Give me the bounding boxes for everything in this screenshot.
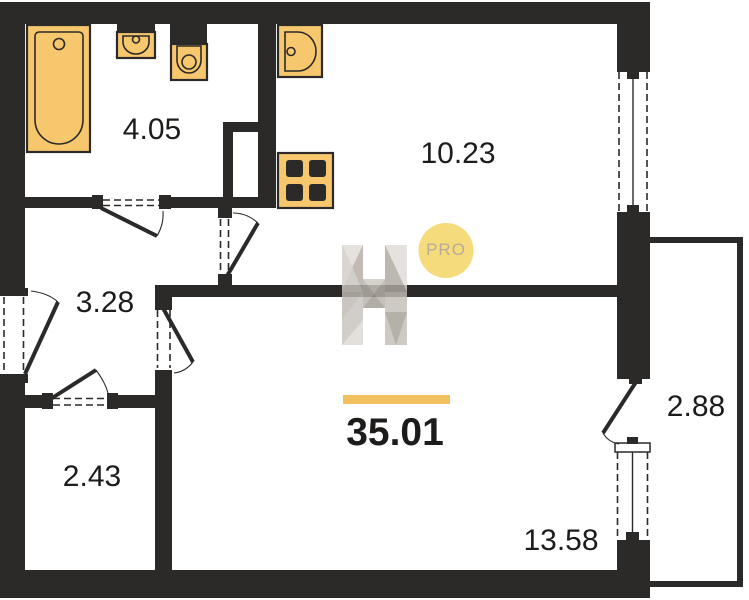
total-area-label: 35.01	[346, 411, 444, 455]
area-label-kitchen-living: 10.23	[420, 137, 495, 171]
bathtub	[27, 25, 90, 152]
door-entrance	[4, 291, 58, 374]
stove	[278, 153, 333, 208]
area-label-balcony: 2.88	[667, 390, 725, 424]
door-storage	[49, 370, 108, 405]
balcony-door	[603, 376, 650, 452]
floor-plan: PRO 4.05 10.23 3.28 2.43 13.58 2.88 35.0…	[0, 0, 749, 600]
door-living-room	[158, 308, 194, 373]
area-label-bathroom: 4.05	[123, 113, 181, 147]
bathroom-sink	[117, 23, 155, 58]
kitchen-sink	[278, 25, 322, 77]
door-bathroom	[101, 200, 163, 236]
area-label-room: 13.58	[523, 524, 598, 558]
area-label-storage: 2.43	[63, 460, 121, 494]
total-area-accent-bar	[343, 395, 450, 404]
area-label-hallway: 3.28	[76, 286, 134, 320]
pro-badge-label: PRO	[426, 240, 466, 260]
window-kitchen	[619, 72, 647, 212]
toilet	[170, 24, 207, 80]
door-hall-kitchen	[221, 213, 259, 276]
watermark-logo	[342, 245, 407, 345]
